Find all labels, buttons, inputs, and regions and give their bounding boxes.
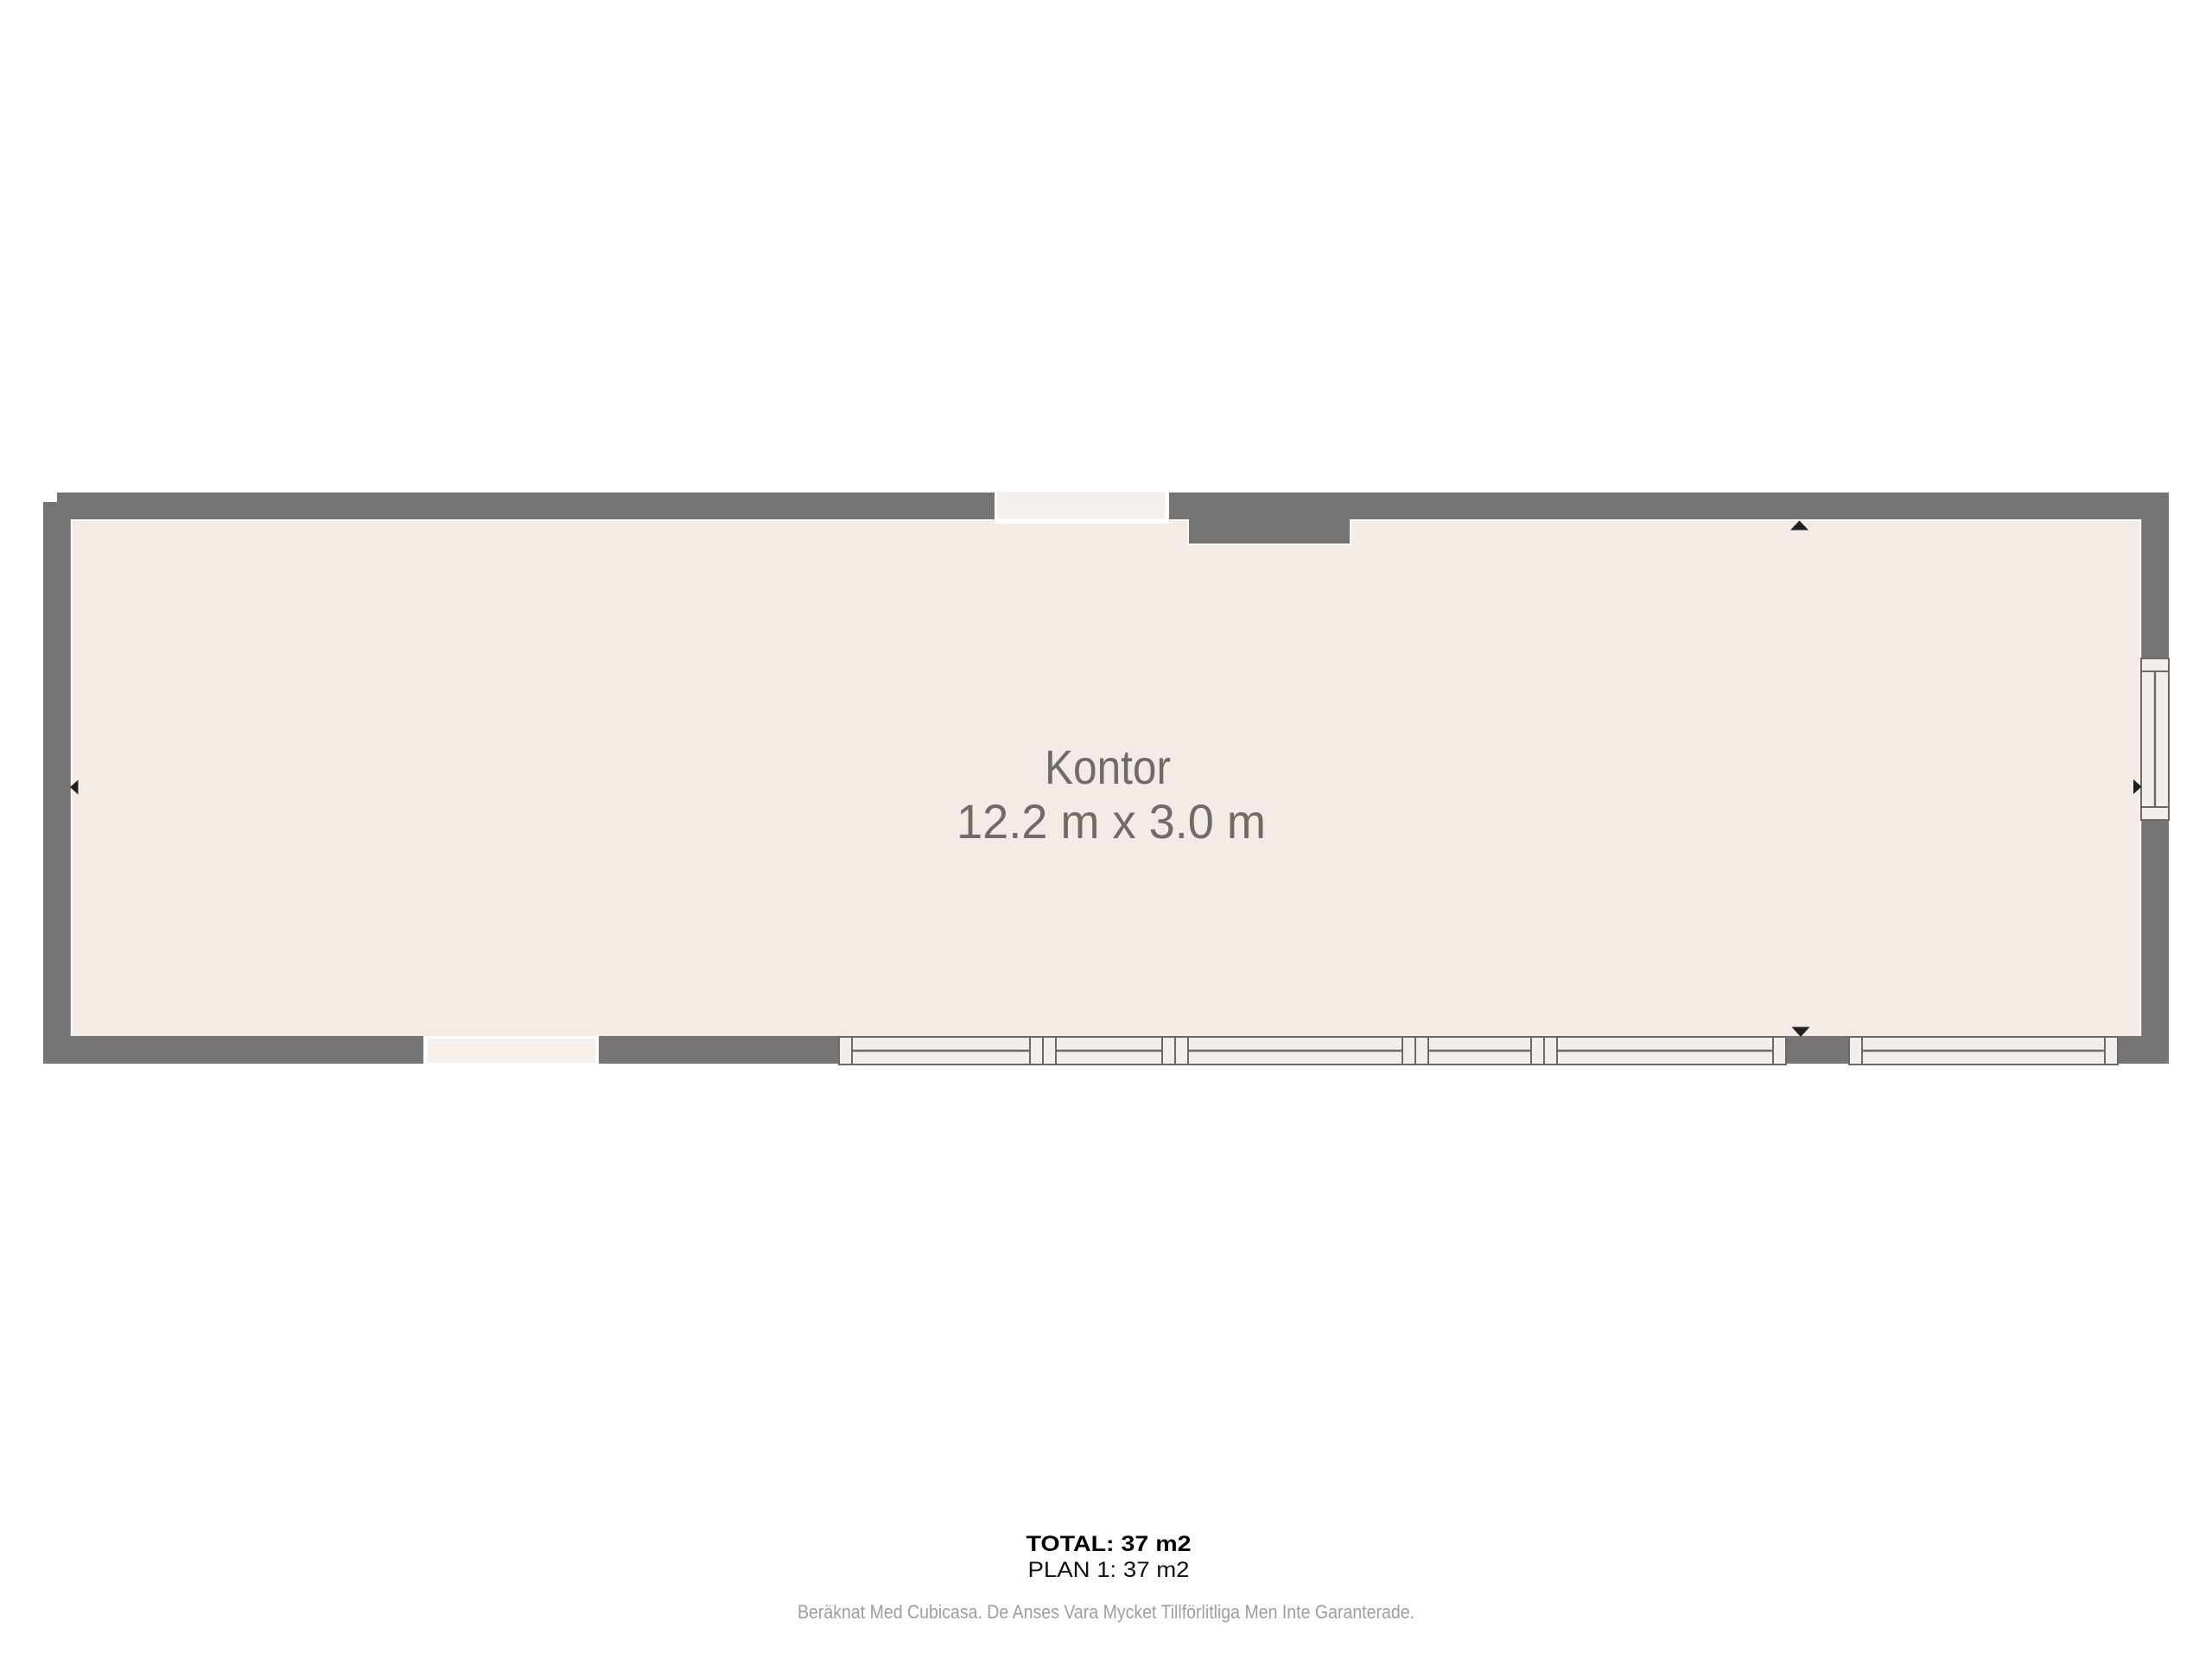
svg-text:Beräknat Med Cubicasa. De Anse: Beräknat Med Cubicasa. De Anses Vara Myc… <box>798 1601 1414 1623</box>
svg-text:12.2 m x 3.0 m: 12.2 m x 3.0 m <box>957 794 1266 849</box>
svg-text:Kontor: Kontor <box>1045 740 1171 794</box>
svg-text:TOTAL: 37 m2: TOTAL: 37 m2 <box>1027 1532 1192 1556</box>
svg-text:PLAN 1: 37 m2: PLAN 1: 37 m2 <box>1028 1558 1190 1582</box>
